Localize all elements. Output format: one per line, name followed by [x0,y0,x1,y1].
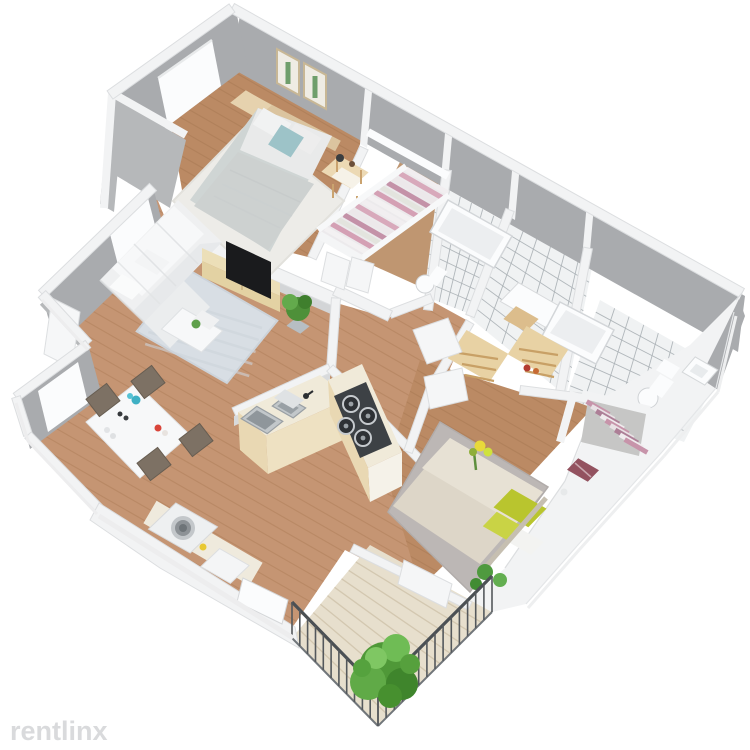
svg-text:rentlinx: rentlinx [10,716,108,746]
